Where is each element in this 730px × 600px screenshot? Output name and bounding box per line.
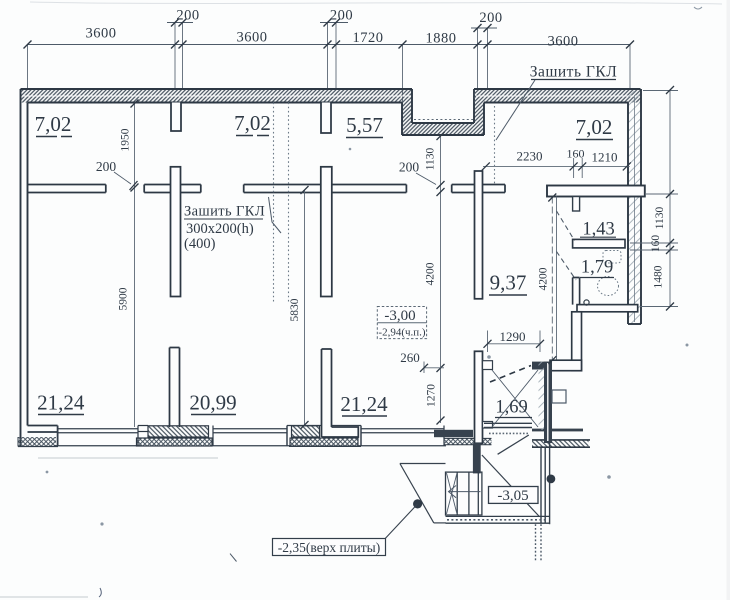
svg-text:1950: 1950 <box>120 128 132 151</box>
svg-text:9,37: 9,37 <box>490 271 527 295</box>
svg-text:160: 160 <box>650 235 662 253</box>
svg-text:1880: 1880 <box>426 31 457 47</box>
svg-text:1,69: 1,69 <box>495 398 527 418</box>
svg-text:3600: 3600 <box>237 30 268 46</box>
svg-text:200: 200 <box>399 160 420 175</box>
svg-text:2230: 2230 <box>517 149 543 164</box>
svg-text:200: 200 <box>176 8 199 24</box>
svg-text:300х200(h): 300х200(h) <box>186 221 254 237</box>
svg-text:1270: 1270 <box>426 384 438 407</box>
svg-text:260: 260 <box>400 350 420 365</box>
svg-text:1290: 1290 <box>500 329 526 344</box>
svg-text:200: 200 <box>479 10 502 26</box>
svg-text:3600: 3600 <box>86 26 117 42</box>
svg-text:21,24: 21,24 <box>37 391 85 415</box>
svg-text:7,02: 7,02 <box>234 111 271 135</box>
svg-text:1720: 1720 <box>353 30 384 46</box>
svg-text:-3,00: -3,00 <box>384 308 415 324</box>
svg-text:Зашить ГКЛ: Зашить ГКЛ <box>184 204 265 220</box>
svg-text:4200: 4200 <box>425 262 437 285</box>
svg-text:5830: 5830 <box>289 298 301 321</box>
svg-text:-3,05: -3,05 <box>497 488 528 504</box>
svg-text:20,99: 20,99 <box>189 391 236 415</box>
svg-text:(400): (400) <box>184 236 216 252</box>
svg-text:1130: 1130 <box>654 206 666 229</box>
svg-text:1,79: 1,79 <box>581 258 613 278</box>
svg-text:200: 200 <box>330 8 353 24</box>
svg-text:5,57: 5,57 <box>346 113 383 137</box>
svg-text:-2,94(ч.п.): -2,94(ч.п.) <box>378 327 425 339</box>
svg-text:160: 160 <box>567 147 585 161</box>
svg-text:5900: 5900 <box>118 287 130 310</box>
svg-text:1480: 1480 <box>653 265 665 288</box>
svg-text:1,43: 1,43 <box>582 220 614 240</box>
svg-text:4200: 4200 <box>538 267 550 290</box>
svg-text:Зашить ГКЛ: Зашить ГКЛ <box>530 64 617 81</box>
svg-text:200: 200 <box>96 159 117 174</box>
svg-text:-2,35(верх плиты): -2,35(верх плиты) <box>278 540 380 555</box>
svg-text:1210: 1210 <box>592 150 618 165</box>
svg-text:7,02: 7,02 <box>576 115 613 139</box>
svg-text:21,24: 21,24 <box>340 392 388 416</box>
svg-text:3600: 3600 <box>548 34 579 50</box>
svg-text:7,02: 7,02 <box>35 112 72 136</box>
svg-text:1130: 1130 <box>425 147 437 170</box>
